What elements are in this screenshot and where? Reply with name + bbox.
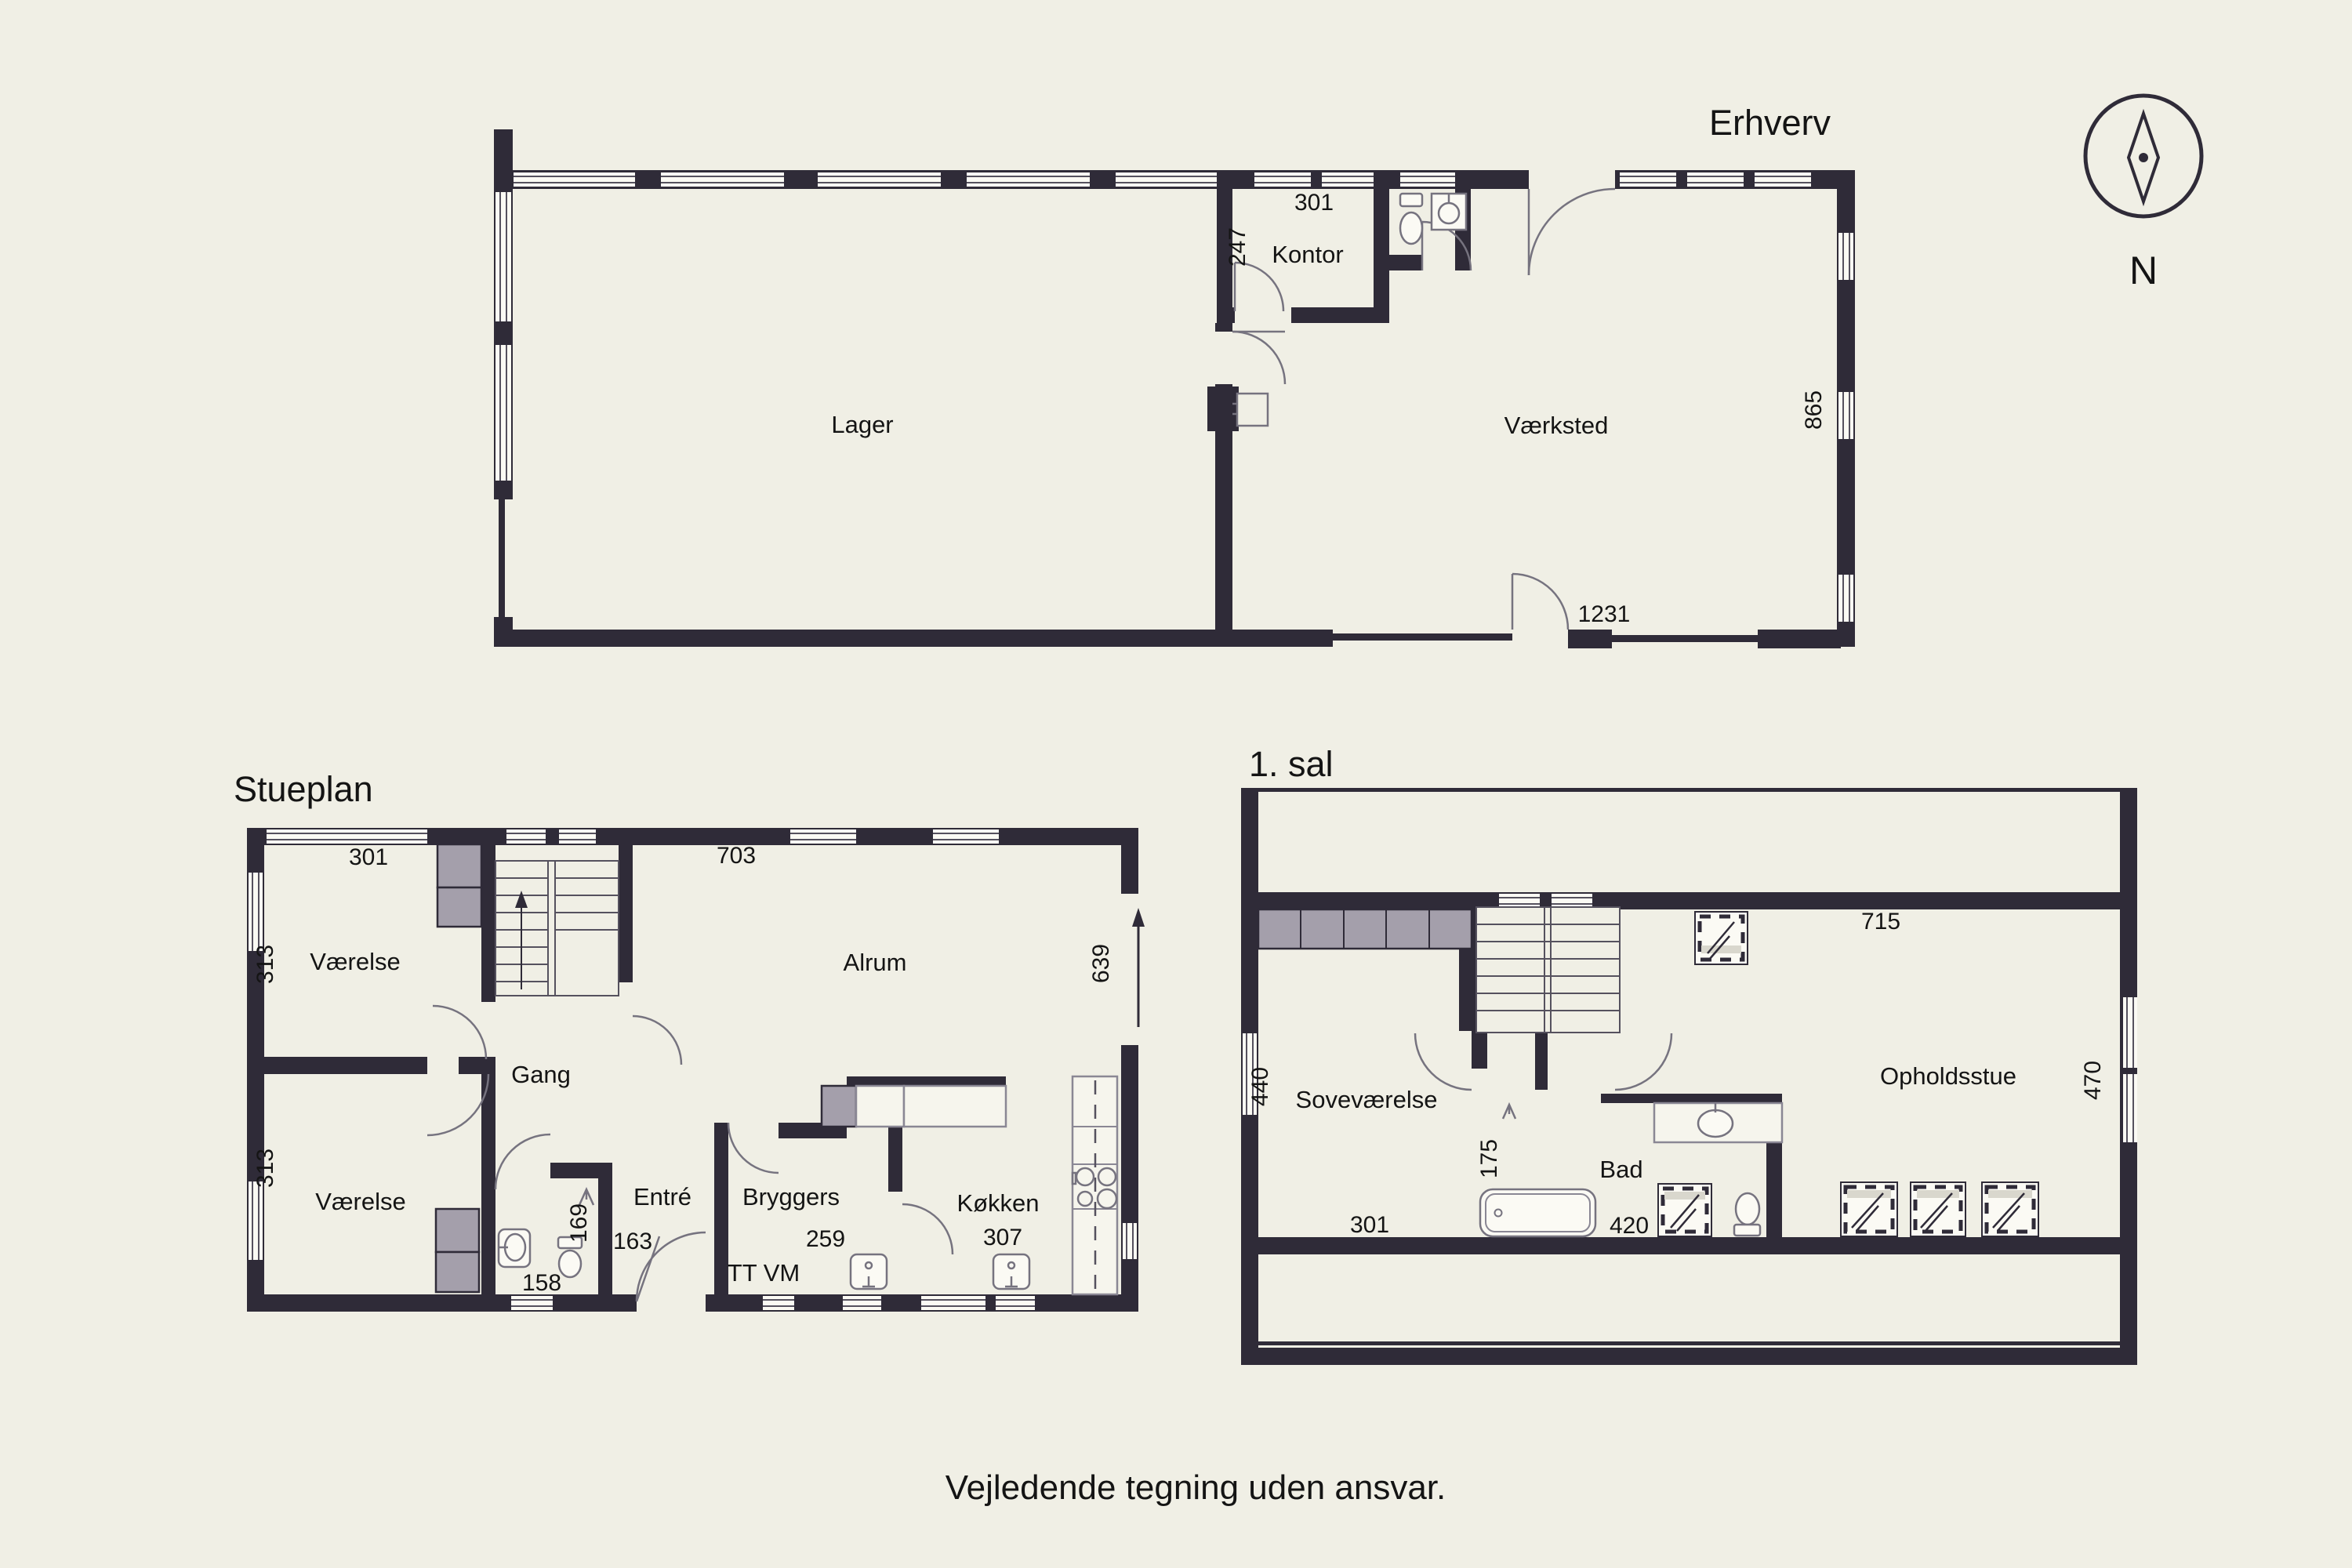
electrical-panel-icon xyxy=(1232,394,1268,426)
room-label-vaerelse1: Værelse xyxy=(310,948,400,975)
skylight-stue-2 xyxy=(1911,1182,1965,1236)
room-label-kokken: Køkken xyxy=(956,1189,1039,1217)
wc-sink-icon xyxy=(499,1229,530,1267)
dim-stueplan-703: 703 xyxy=(717,843,756,869)
dim-sal1-470: 470 xyxy=(2080,1061,2106,1100)
compass-center-dot xyxy=(2139,153,2148,162)
compass-north-label: N xyxy=(2129,249,2158,292)
bryggers-sink-icon xyxy=(851,1254,887,1289)
stairs-stueplan xyxy=(495,861,619,996)
kitchen-counter xyxy=(1073,1076,1117,1294)
dim-erhverv-right: 865 xyxy=(1801,390,1827,430)
dim-sal1-420: 420 xyxy=(1610,1213,1649,1239)
dim-stueplan-158: 158 xyxy=(522,1270,561,1296)
floorplan-drawing: Erhverv Lager Kontor Værksted 301 247 86… xyxy=(0,0,2352,1568)
room-label-gang: Gang xyxy=(511,1061,571,1088)
skylight-stue-3 xyxy=(1982,1182,2038,1236)
skylight-stue-1 xyxy=(1841,1182,1897,1236)
room-label-sovevaerelse: Soveværelse xyxy=(1296,1086,1438,1113)
sal1-wardrobe xyxy=(1258,909,1472,949)
bathroom-sink-icon xyxy=(1654,1103,1782,1142)
toilet-icon xyxy=(1400,194,1422,244)
label-tt-vm: TT VM xyxy=(728,1259,800,1287)
stueplan-title: Stueplan xyxy=(234,769,373,809)
sal1-title: 1. sal xyxy=(1249,744,1334,784)
room-label-opholdsstue: Opholdsstue xyxy=(1880,1062,2016,1090)
dim-sal1-175: 175 xyxy=(1476,1139,1502,1178)
stairs-sal1 xyxy=(1476,907,1620,1033)
kitchen-upper-counter xyxy=(904,1086,1006,1127)
dim-sal1-715: 715 xyxy=(1861,909,1900,935)
kitchen-sink-icon xyxy=(993,1254,1029,1289)
erhverv-title: Erhverv xyxy=(1709,103,1831,143)
dim-erhverv-bottom: 1231 xyxy=(1578,601,1631,627)
skylight-bad xyxy=(1658,1184,1711,1236)
room-label-alrum: Alrum xyxy=(844,949,907,976)
room-label-kontor: Kontor xyxy=(1272,241,1343,268)
dim-stueplan-259: 259 xyxy=(806,1226,845,1252)
room-label-bad: Bad xyxy=(1599,1156,1642,1183)
dim-kontor-depth: 247 xyxy=(1225,227,1250,267)
room-label-vaerelse2: Værelse xyxy=(315,1188,405,1215)
sink-icon xyxy=(1432,194,1466,230)
skylight-top xyxy=(1695,912,1748,964)
room-label-lager: Lager xyxy=(831,411,893,438)
dim-stueplan-301: 301 xyxy=(349,844,388,870)
room-label-vaerksted: Værksted xyxy=(1504,412,1609,439)
erhverv-top-door-opening xyxy=(1529,169,1615,191)
dim-stueplan-313a: 313 xyxy=(252,945,278,984)
dim-stueplan-163: 163 xyxy=(613,1229,652,1254)
bathroom-toilet-icon xyxy=(1734,1193,1760,1236)
dim-stueplan-169: 169 xyxy=(566,1203,592,1243)
room-label-bryggers: Bryggers xyxy=(742,1183,840,1210)
dim-sal1-301: 301 xyxy=(1350,1212,1389,1238)
dim-kontor-width: 301 xyxy=(1294,190,1334,216)
bathtub-icon xyxy=(1480,1189,1595,1236)
dim-stueplan-313b: 313 xyxy=(252,1149,278,1188)
dim-stueplan-639: 639 xyxy=(1088,944,1114,983)
appliance-block xyxy=(856,1086,904,1127)
footer-disclaimer: Vejledende tegning uden ansvar. xyxy=(946,1468,1446,1507)
stueplan-entrance-opening xyxy=(637,1293,706,1313)
dim-sal1-440: 440 xyxy=(1247,1067,1273,1106)
floorplan-page: Erhverv Lager Kontor Værksted 301 247 86… xyxy=(0,0,2352,1568)
dim-stueplan-307: 307 xyxy=(983,1225,1022,1250)
room-label-entre: Entré xyxy=(633,1183,691,1210)
